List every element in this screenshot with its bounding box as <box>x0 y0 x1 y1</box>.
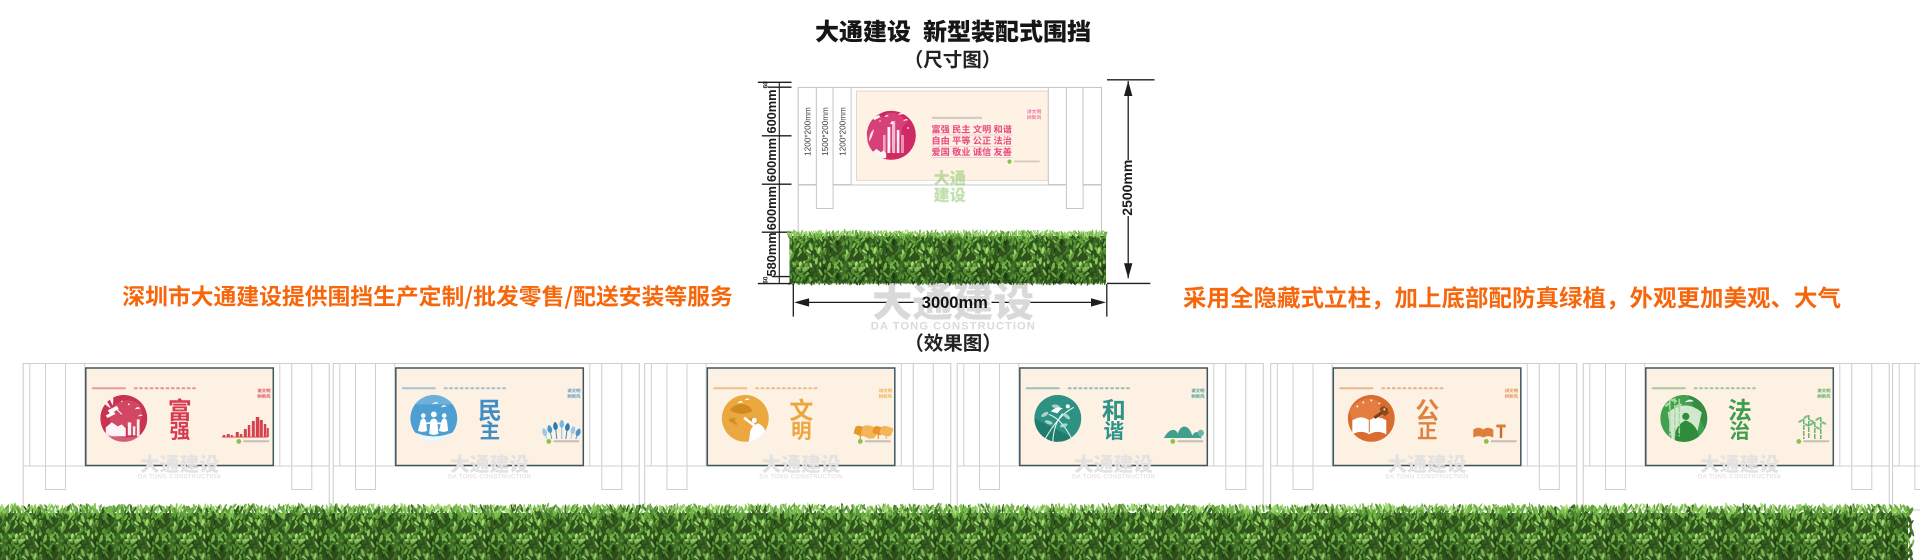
svg-text:DA TONG CONSTRUCTION: DA TONG CONSTRUCTION <box>1698 474 1781 480</box>
svg-text:DA TONG CONSTRUCTION: DA TONG CONSTRUCTION <box>1072 474 1155 480</box>
svg-text:580mm: 580mm <box>764 232 779 276</box>
svg-text:600mm: 600mm <box>764 138 779 182</box>
svg-text:DA TONG CONSTRUCTION: DA TONG CONSTRUCTION <box>138 474 221 480</box>
svg-text:1200*200mm: 1200*200mm <box>804 107 813 156</box>
svg-text:DA TONG CONSTRUCTION: DA TONG CONSTRUCTION <box>1385 474 1468 480</box>
svg-text:1200*200mm: 1200*200mm <box>838 107 847 156</box>
svg-text:DA TONG CONSTRUCTION: DA TONG CONSTRUCTION <box>448 474 531 480</box>
svg-text:3000mm: 3000mm <box>922 294 988 312</box>
svg-text:1500*200mm: 1500*200mm <box>821 107 830 156</box>
svg-text:60: 60 <box>763 276 770 284</box>
svg-text:60: 60 <box>763 81 770 89</box>
svg-text:600mm: 600mm <box>764 186 779 230</box>
svg-text:600mm: 600mm <box>764 89 779 133</box>
svg-text:DA TONG CONSTRUCTION: DA TONG CONSTRUCTION <box>759 474 842 480</box>
svg-text:DA TONG CONSTRUCTION: DA TONG CONSTRUCTION <box>871 321 1036 333</box>
svg-text:2500mm: 2500mm <box>1119 160 1135 216</box>
